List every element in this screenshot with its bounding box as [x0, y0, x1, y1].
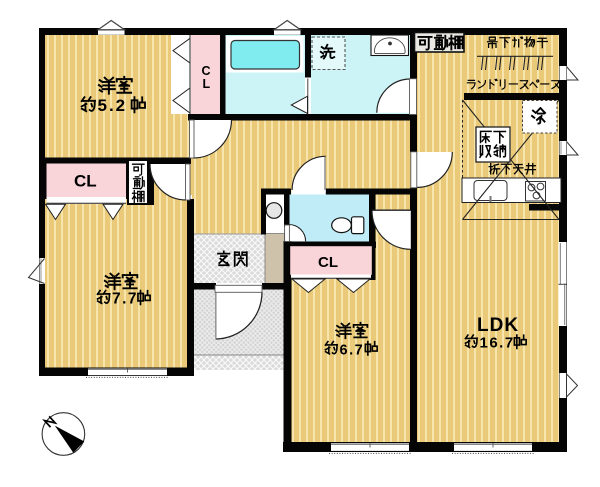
svg-text:7.7: 7.7 — [112, 291, 138, 308]
svg-text:16.7: 16.7 — [480, 335, 515, 352]
svg-text:LDK: LDK — [477, 315, 519, 336]
svg-text:6.7: 6.7 — [340, 343, 365, 359]
svg-text:L: L — [203, 77, 211, 91]
svg-text:CL: CL — [318, 254, 338, 271]
svg-text:CL: CL — [74, 172, 97, 191]
svg-text:C: C — [202, 64, 211, 78]
svg-text:5.2: 5.2 — [98, 96, 128, 115]
